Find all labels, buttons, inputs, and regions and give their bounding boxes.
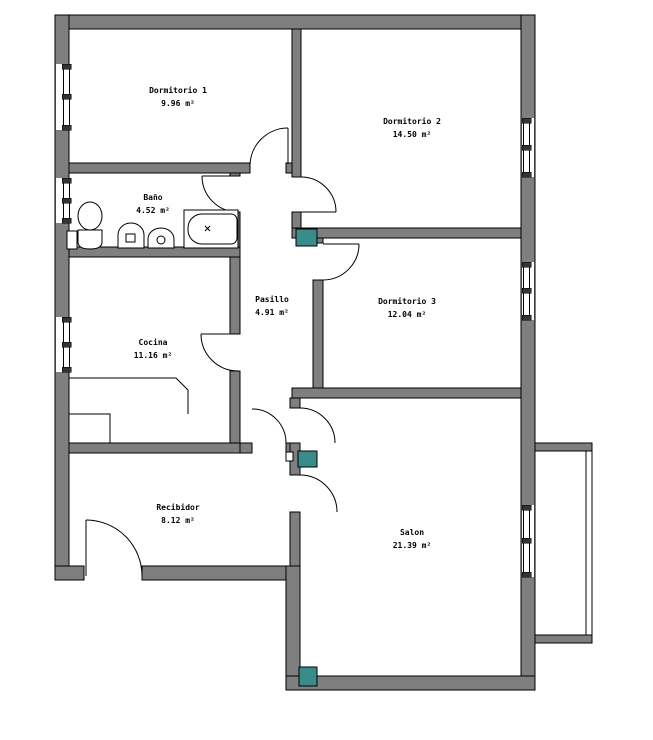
washbasin-icon xyxy=(78,202,102,249)
room-name: Dormitorio 3 xyxy=(378,295,436,308)
room-name: Pasillo xyxy=(255,293,289,306)
room-name: Recibidor xyxy=(156,501,199,514)
wall-cocina-east xyxy=(230,371,240,453)
balcony xyxy=(535,443,592,643)
wall-salon-bottom xyxy=(286,676,535,690)
wall-dorm2-dorm3-divider xyxy=(292,228,521,238)
room-area: 21.39 m² xyxy=(393,539,432,552)
kitchen-counter-bottom xyxy=(69,414,110,443)
door-pasillo-salon xyxy=(300,408,335,443)
room-name: Salon xyxy=(393,526,432,539)
wall-cocina-south xyxy=(69,443,240,453)
door-dormitorio1 xyxy=(250,128,288,166)
door-entrance xyxy=(86,520,142,576)
room-name: Cocina xyxy=(134,336,173,349)
room-name: Dormitorio 1 xyxy=(149,84,207,97)
balcony-wall-bottom xyxy=(535,635,592,643)
room-name: Dormitorio 2 xyxy=(383,115,441,128)
door-bano xyxy=(202,176,238,212)
kitchen-counter xyxy=(69,378,188,443)
room-label-recibidor: Recibidor 8.12 m² xyxy=(156,501,199,527)
wall-pasillo-south-block-a xyxy=(240,443,252,453)
room-label-dormitorio-3: Dormitorio 3 12.04 m² xyxy=(378,295,436,321)
wall-salon-west-exterior xyxy=(286,566,300,676)
door-dormitorio2 xyxy=(301,177,336,212)
kitchen-counter-top xyxy=(69,378,188,414)
floorplan-canvas: Dormitorio 1 9.96 m² Dormitorio 2 14.50 … xyxy=(0,0,653,740)
window-bano xyxy=(56,178,71,223)
room-area: 12.04 m² xyxy=(378,308,436,321)
room-label-cocina: Cocina 11.16 m² xyxy=(134,336,173,362)
column-salon-west xyxy=(298,451,317,467)
window-dormitorio2 xyxy=(522,118,534,177)
door-cocina xyxy=(201,334,238,371)
door-recibidor-salon xyxy=(300,475,337,512)
room-label-salon: Salon 21.39 m² xyxy=(393,526,432,552)
room-area: 8.12 m² xyxy=(156,514,199,527)
wall-right xyxy=(521,15,535,690)
window-salon xyxy=(522,505,534,577)
bano-duct xyxy=(67,231,77,249)
wall-dorm2-west-a xyxy=(292,29,301,177)
room-area: 4.52 m² xyxy=(136,204,170,217)
column-salon-south xyxy=(299,667,317,686)
room-name: Baño xyxy=(136,191,170,204)
wall-dorm1-south xyxy=(69,163,250,173)
wall-dorm3-west-b xyxy=(313,280,323,388)
balcony-wall-top xyxy=(535,443,592,451)
room-label-bano: Baño 4.52 m² xyxy=(136,191,170,217)
room-label-dormitorio-1: Dormitorio 1 9.96 m² xyxy=(149,84,207,110)
bidet-icon xyxy=(118,223,144,248)
wall-salon-west-upper xyxy=(290,512,300,566)
room-label-dormitorio-2: Dormitorio 2 14.50 m² xyxy=(383,115,441,141)
wall-top xyxy=(55,15,535,29)
window-dormitorio3 xyxy=(522,262,534,320)
floorplan-drawing xyxy=(0,0,653,740)
window-dormitorio1 xyxy=(56,64,71,130)
door-pasillo-recibidor xyxy=(252,409,286,443)
bathtub-icon xyxy=(184,210,238,248)
column-dorm2-dorm3 xyxy=(296,229,317,246)
room-area: 11.16 m² xyxy=(134,349,173,362)
door-dormitorio3 xyxy=(323,244,359,280)
wall-bottom-left-a xyxy=(55,566,84,580)
wall-dorm3-salon-divider xyxy=(292,388,521,398)
wall-bottom-left-b xyxy=(142,566,300,580)
wall-salon-west-stub xyxy=(290,398,300,408)
toilet-icon xyxy=(148,228,174,248)
room-label-pasillo: Pasillo 4.91 m² xyxy=(255,293,289,319)
room-area: 14.50 m² xyxy=(383,128,441,141)
room-area: 4.91 m² xyxy=(255,306,289,319)
column-notch xyxy=(286,452,293,461)
room-area: 9.96 m² xyxy=(149,97,207,110)
balcony-railing xyxy=(586,451,592,635)
interior-walls xyxy=(69,29,521,566)
window-cocina xyxy=(56,317,71,372)
